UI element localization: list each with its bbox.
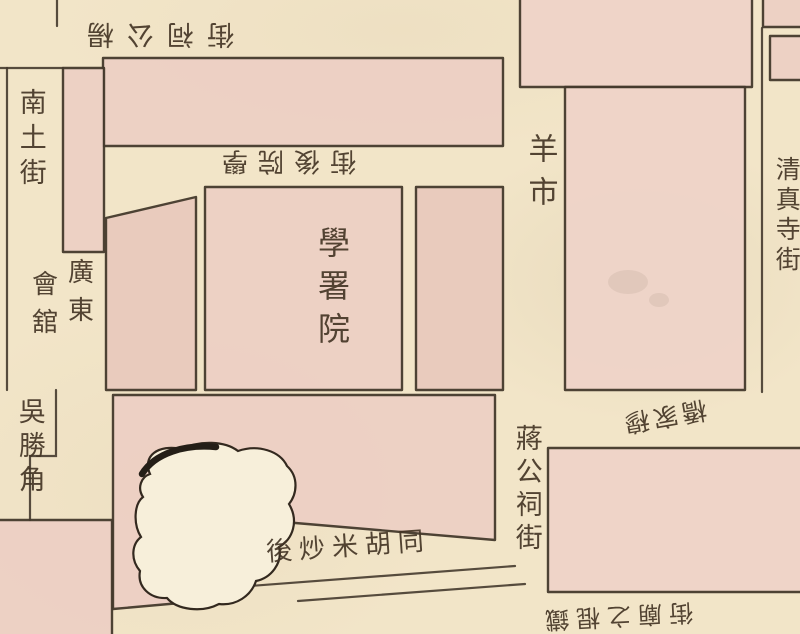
block-row2-east: [416, 187, 503, 390]
street-label-yangshi: 羊市: [521, 133, 559, 219]
block-top-right-strip: [520, 0, 752, 87]
paper-smudge: [649, 293, 669, 307]
block-top-right-small-2: [770, 36, 800, 80]
block-bottom-right: [548, 448, 800, 592]
street-label-nantu: 南土街: [13, 88, 47, 193]
place-label-guildhall-col-right: 廣東: [62, 258, 95, 334]
block-xueshu-yuan: [205, 187, 402, 390]
block-bottom-left: [0, 520, 112, 634]
street-label-jianggongci: 蔣公祠街: [509, 424, 543, 556]
block-row2-west: [106, 197, 196, 390]
place-label-guildhall-col-left: 會舘: [26, 270, 59, 346]
block-west-tall: [63, 68, 104, 252]
paper-smudge: [608, 270, 648, 294]
street-label-qingzhensi: 清真寺街: [770, 156, 800, 276]
street-edge-hutong-south1: [250, 566, 515, 586]
map-canvas: 楊公祠街 南土街 學院後街 學署院 廣東 會舘 羊市 清真寺街 穆家橋 蔣公祠街…: [0, 0, 800, 634]
street-label-wushengjiao: 吳勝角: [12, 397, 46, 499]
block-row1-north: [103, 58, 503, 146]
street-label-yanggongci: 楊公祠街: [74, 16, 234, 50]
place-label-xueshu-yuan: 學署院: [312, 226, 352, 355]
block-top-right-small-1: [763, 0, 800, 27]
block-right-large: [565, 87, 745, 390]
street-edge-hutong-south2: [298, 584, 525, 601]
street-label-xueyuan-back: 學院後街: [212, 144, 356, 177]
